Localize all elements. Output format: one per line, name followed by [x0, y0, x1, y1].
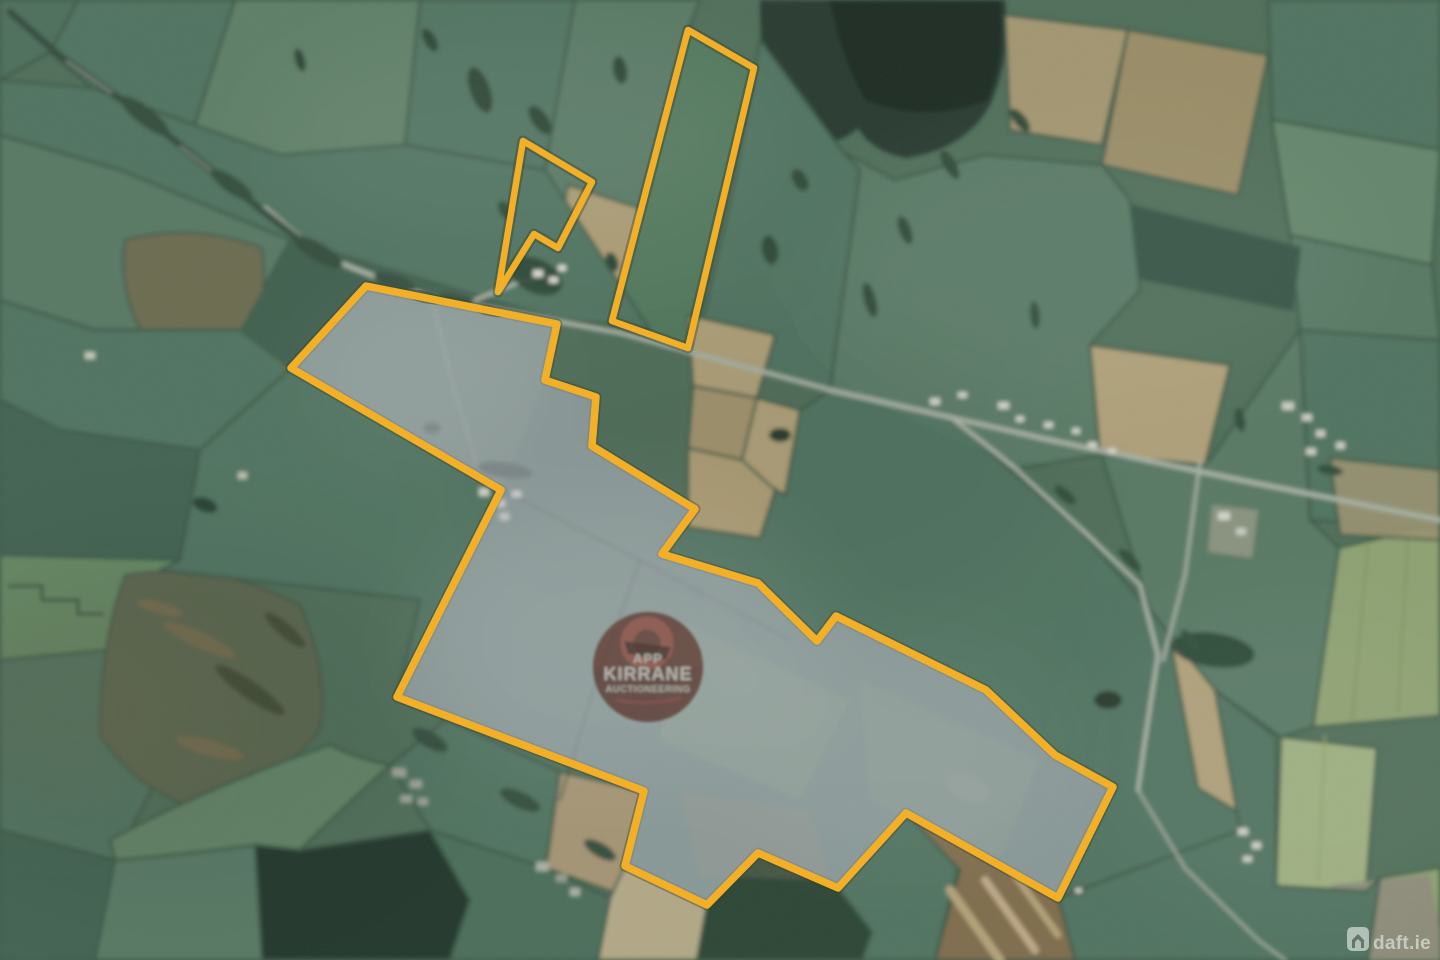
svg-text:daft.ie: daft.ie [1373, 933, 1431, 954]
svg-text:AUCTIONEERING: AUCTIONEERING [606, 684, 691, 695]
svg-text:KIRRANE: KIRRANE [603, 664, 692, 684]
